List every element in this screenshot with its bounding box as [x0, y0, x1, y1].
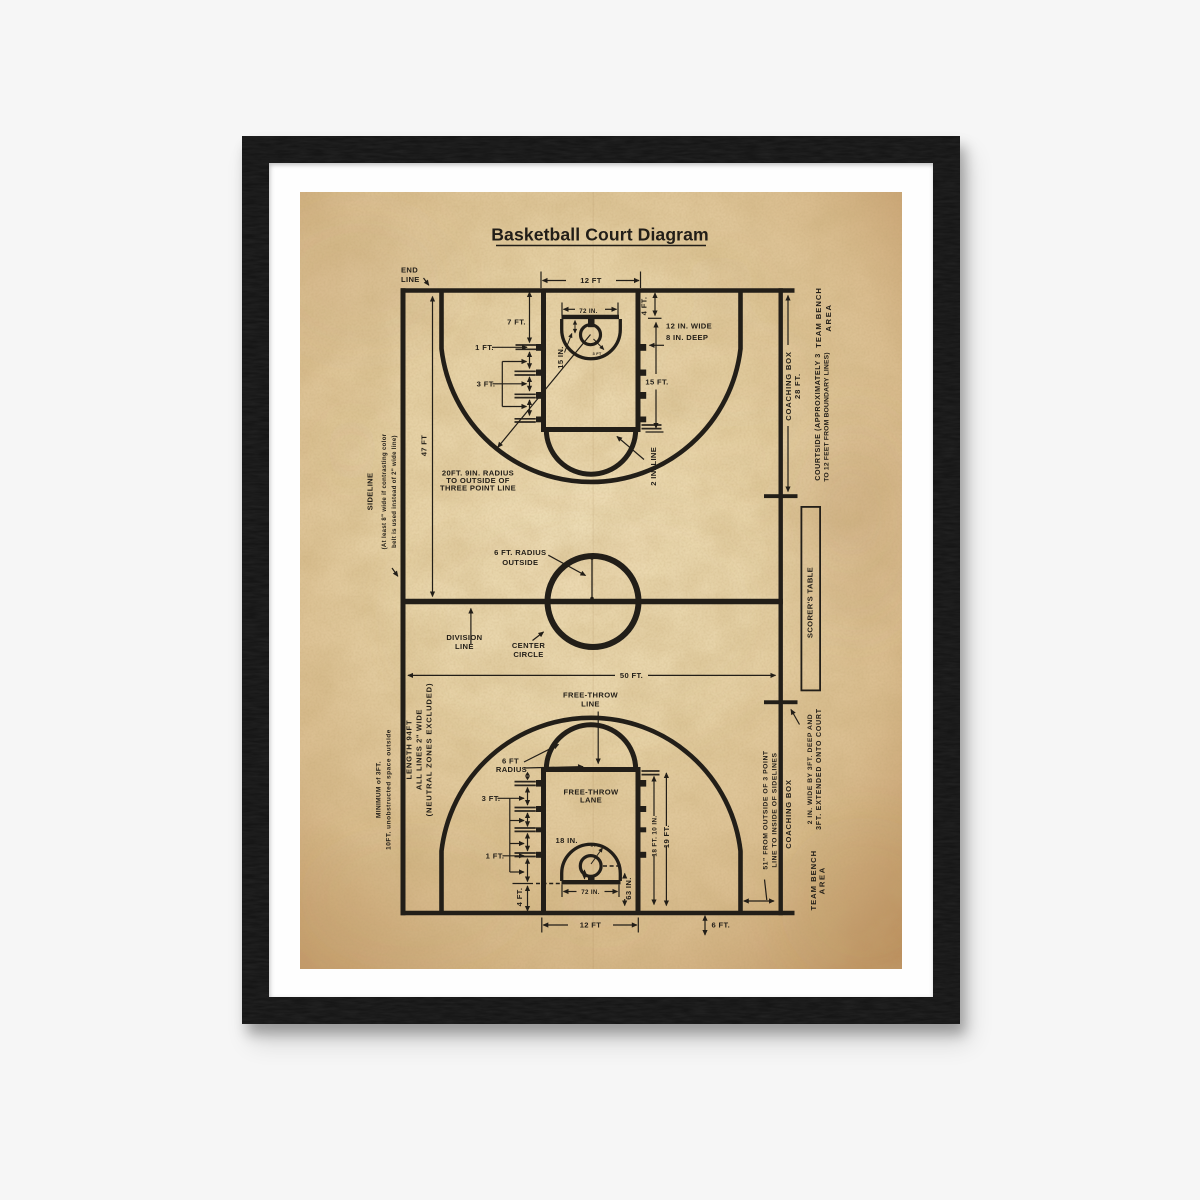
svg-text:3 FT: 3 FT	[590, 843, 599, 848]
svg-text:15 IN.: 15 IN.	[556, 346, 565, 368]
svg-text:FREE-THROW: FREE-THROW	[563, 690, 618, 699]
svg-text:28 FT.: 28 FT.	[793, 373, 802, 399]
svg-text:Basketball Court Diagram: Basketball Court Diagram	[491, 225, 709, 245]
svg-text:3FT. EXTENDED ONTO COURT: 3FT. EXTENDED ONTO COURT	[816, 708, 823, 830]
svg-text:2 IN. WIDE BY 3FT. DEEP AND: 2 IN. WIDE BY 3FT. DEEP AND	[807, 714, 814, 824]
svg-text:1 FT.: 1 FT.	[486, 851, 505, 860]
svg-text:15 FT.: 15 FT.	[645, 378, 668, 387]
svg-text:12 FT: 12 FT	[580, 276, 602, 285]
svg-text:4 FT.: 4 FT.	[640, 297, 649, 316]
svg-text:MINIMUM of 3FT.: MINIMUM of 3FT.	[376, 761, 383, 818]
svg-text:AREA: AREA	[818, 866, 827, 894]
svg-text:AREA: AREA	[824, 303, 833, 331]
svg-text:19 FT.: 19 FT.	[662, 825, 671, 848]
svg-text:50 FT.: 50 FT.	[620, 671, 643, 680]
svg-text:63 IN.: 63 IN.	[624, 877, 633, 899]
svg-text:SIDELINE: SIDELINE	[366, 473, 375, 511]
svg-text:72 IN.: 72 IN.	[579, 308, 598, 315]
svg-text:DIVISION: DIVISION	[446, 633, 482, 642]
svg-text:belt is used instead of 2" wid: belt is used instead of 2" wide line)	[392, 435, 398, 548]
svg-text:8 IN. DEEP: 8 IN. DEEP	[666, 333, 708, 342]
svg-text:TEAM BENCH: TEAM BENCH	[814, 287, 823, 348]
svg-text:THREE POINT LINE: THREE POINT LINE	[440, 484, 516, 493]
svg-text:COURTSIDE (APPROXIMATELY 3: COURTSIDE (APPROXIMATELY 3	[813, 353, 822, 481]
svg-text:COACHING BOX: COACHING BOX	[784, 351, 793, 421]
svg-text:51" FROM OUTSIDE OF 3 POINT: 51" FROM OUTSIDE OF 3 POINT	[762, 750, 769, 870]
svg-text:LINE TO INSIDE OF SIDELINES: LINE TO INSIDE OF SIDELINES	[771, 752, 778, 867]
svg-text:2 IN. LINE: 2 IN. LINE	[649, 447, 658, 486]
svg-text:CENTER: CENTER	[512, 641, 545, 650]
svg-text:(NEUTRAL ZONES EXCLUDED): (NEUTRAL ZONES EXCLUDED)	[425, 683, 434, 817]
svg-text:LINE: LINE	[455, 642, 474, 651]
svg-text:1 FT.: 1 FT.	[475, 343, 494, 352]
svg-text:OUTSIDE: OUTSIDE	[502, 558, 538, 567]
svg-text:12 IN. WIDE: 12 IN. WIDE	[666, 322, 712, 331]
svg-text:LENGTH 94FT: LENGTH 94FT	[405, 720, 414, 780]
svg-text:6 FT.: 6 FT.	[712, 921, 731, 930]
svg-text:4 FT.: 4 FT.	[515, 888, 524, 907]
svg-text:COACHING BOX: COACHING BOX	[784, 779, 793, 849]
svg-text:10FT. unobstructed space outsi: 10FT. unobstructed space outside	[386, 729, 393, 850]
svg-text:47 FT: 47 FT	[420, 435, 429, 457]
svg-text:72 IN.: 72 IN.	[581, 889, 600, 896]
svg-text:6 FT. RADIUS: 6 FT. RADIUS	[494, 548, 546, 557]
svg-text:LINE: LINE	[581, 700, 600, 709]
svg-text:END: END	[401, 266, 418, 275]
svg-text:RADIUS: RADIUS	[496, 765, 527, 774]
svg-text:CIRCLE: CIRCLE	[513, 650, 543, 659]
svg-text:LANE: LANE	[580, 795, 602, 804]
svg-text:12 FT: 12 FT	[580, 921, 602, 930]
svg-text:7 FT.: 7 FT.	[507, 318, 526, 327]
svg-text:18 IN.: 18 IN.	[556, 836, 578, 845]
svg-text:ALL LINES 2" WIDE: ALL LINES 2" WIDE	[415, 709, 424, 790]
svg-text:3 FT.: 3 FT.	[477, 379, 496, 388]
svg-text:TO 12 FEET FROM BOUNDARY LINES: TO 12 FEET FROM BOUNDARY LINES)	[823, 352, 830, 482]
svg-text:3 FT: 3 FT	[592, 351, 601, 356]
svg-text:18 FT. 10 IN.: 18 FT. 10 IN.	[652, 815, 659, 856]
svg-text:3 FT.: 3 FT.	[482, 794, 501, 803]
svg-text:SCORER'S TABLE: SCORER'S TABLE	[806, 567, 815, 638]
svg-text:LINE: LINE	[401, 275, 420, 284]
svg-text:(At least 8" wide if contrasti: (At least 8" wide if contrasting color	[382, 433, 388, 549]
